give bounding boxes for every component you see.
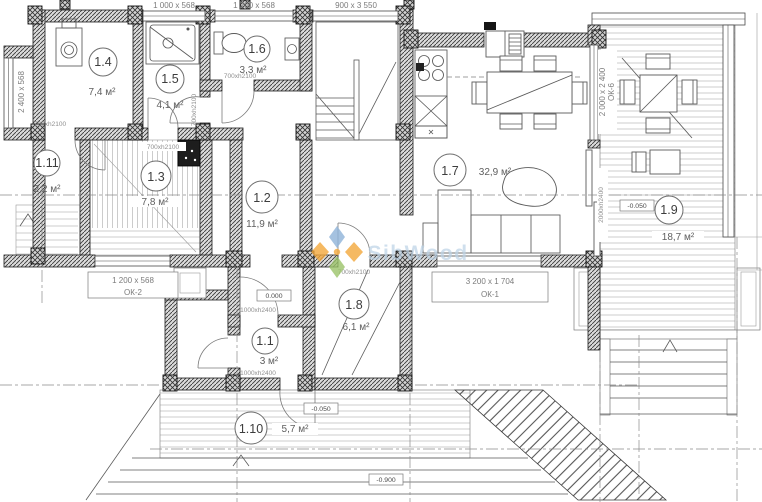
toilet <box>214 32 246 54</box>
room-number: 1.1 <box>256 334 273 348</box>
door-label-2000: 2000xh2400 <box>598 187 605 223</box>
door-label-700-c: 700xh2100 <box>224 73 257 80</box>
washing-machine <box>56 19 82 66</box>
dim-window-900: 900 x 3 550 <box>335 1 377 10</box>
stove-control <box>416 63 424 71</box>
terrace-deck <box>600 25 735 330</box>
door-arc-wc <box>222 91 254 123</box>
ok1-name: ОК-1 <box>481 290 500 299</box>
room-area: 7,8 м² <box>142 197 170 208</box>
watermark: SibWood <box>311 226 469 278</box>
watermark-logo-petal-orange-right <box>345 242 363 262</box>
room-number: 1.7 <box>441 164 458 178</box>
ok2-name: ОК-2 <box>124 288 143 297</box>
door-label-700-d: 700xh2100 <box>191 94 198 127</box>
door-label-1000-b: 1000xh2400 <box>240 370 276 377</box>
room-area: 6,1 м² <box>343 322 371 333</box>
dining-table <box>472 56 587 129</box>
room-number: 1.9 <box>660 203 677 217</box>
shower-tray <box>146 22 199 64</box>
room-area: 4,1 м² <box>157 100 185 111</box>
room-number: 1.8 <box>345 298 362 312</box>
ok2-size: 1 200 x 568 <box>112 276 154 285</box>
dim-window-1000: 1 000 x 568 <box>153 1 195 10</box>
room-area: 11,9 м² <box>246 219 278 230</box>
dim-window-1200: 1 200 x 568 <box>233 1 275 10</box>
ok6-name: ОК-6 <box>607 82 616 101</box>
level-m050-terrace: -0.050 <box>627 203 646 210</box>
wc-sink <box>285 38 299 60</box>
room-number: 1.6 <box>248 42 265 56</box>
room-1-8-label: 1.8 6,1 м² <box>339 289 370 333</box>
level-m900: -0.900 <box>376 477 395 484</box>
sliding-door-panel-1 <box>586 150 592 206</box>
fridge-unit <box>484 22 524 57</box>
watermark-logo-petal-blue <box>329 226 345 248</box>
terrace-side-box-right <box>737 268 760 330</box>
door-label-700-b: 700xh2100 <box>147 144 180 151</box>
door-label-700-e: 700xh2100 <box>338 269 371 276</box>
room-area: 32,9 м² <box>479 167 512 178</box>
room-1-5-label: 1.5 4,1 м² <box>156 65 184 111</box>
floor-plan-canvas: 1.4 7,4 м² 1.5 4,1 м² 1.6 3,3 м² 1.2 11,… <box>0 0 762 502</box>
watermark-text: SibWood <box>367 242 468 265</box>
room-1-2-label: 1.2 11,9 м² <box>246 181 279 230</box>
chimney <box>174 268 206 298</box>
door-label-1000-a: 1000xh2400 <box>240 307 276 314</box>
watermark-logo-center <box>334 249 340 255</box>
room-area: 3 м² <box>260 356 279 367</box>
room-1-11-label: 1.11 2,2 м² <box>34 150 62 195</box>
floor-plan-page: 1.4 7,4 м² 1.5 4,1 м² 1.6 3,3 м² 1.2 11,… <box>0 0 762 502</box>
room-area: 18,7 м² <box>662 232 695 243</box>
room-number: 1.2 <box>253 191 270 205</box>
level-zero: 0.000 <box>265 293 282 300</box>
room-number: 1.10 <box>239 422 263 436</box>
room-1-1-label: 1.1 3 м² <box>252 328 279 367</box>
vent-shaft <box>484 22 496 30</box>
room-number: 1.3 <box>147 170 164 184</box>
ok6-size: 2 000 x 2 400 <box>598 67 607 116</box>
level-m050-porch: -0.050 <box>311 406 330 413</box>
room-area: 5,7 м² <box>282 424 310 435</box>
cellar-steps <box>16 205 80 258</box>
staircase <box>316 22 398 140</box>
door-label-700-a: 700xh2100 <box>34 121 67 128</box>
room-number: 1.4 <box>94 55 111 69</box>
dim-window-2400: 2 400 x 568 <box>17 71 26 113</box>
ok1-size: 3 200 x 1 704 <box>466 277 515 286</box>
corner-steps-ramp <box>455 390 666 500</box>
door-arc-closet <box>198 338 228 368</box>
room-number: 1.11 <box>35 156 58 170</box>
room-area: 2,2 м² <box>34 184 62 195</box>
room-number: 1.5 <box>161 72 178 86</box>
room-area: 7,4 м² <box>89 87 117 98</box>
room-1-4-label: 1.4 7,4 м² <box>89 48 117 98</box>
room-1-7-label: 1.7 32,9 м² <box>434 154 512 186</box>
